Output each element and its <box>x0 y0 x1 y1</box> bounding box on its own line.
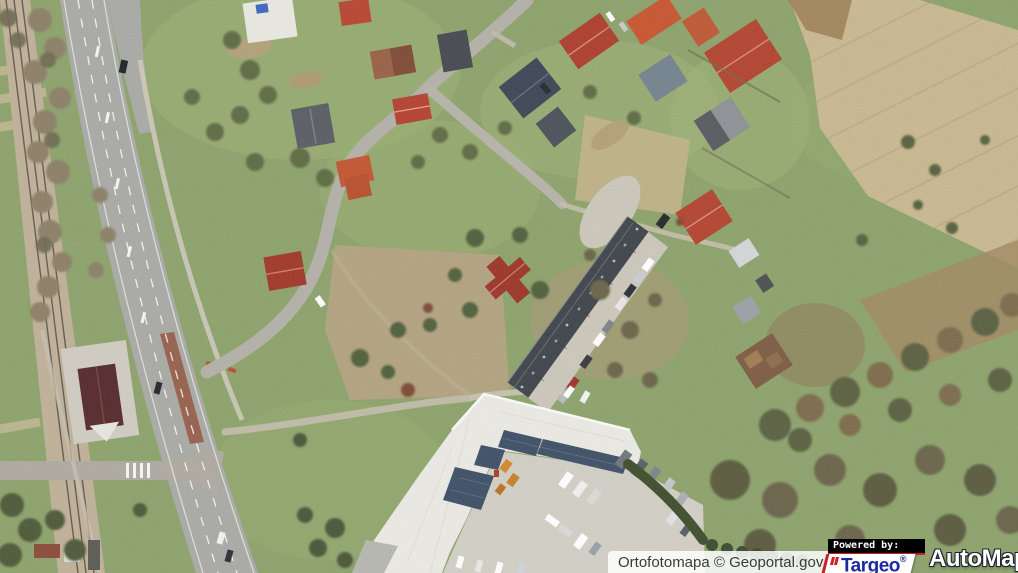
automapa-logo[interactable]: AutoMapa® <box>929 543 1018 571</box>
map-attribution: Ortofotomapa © Geoportal.gov.pl <box>608 551 848 573</box>
targeo-registered-mark: ® <box>900 554 906 564</box>
targeo-logo[interactable]: Targeo® <box>822 554 916 573</box>
photo-grain-overlay <box>0 0 1018 573</box>
targeo-ticks-icon <box>831 550 840 558</box>
automapa-logo-text: AutoMapa <box>929 545 1018 572</box>
satellite-map <box>0 0 1018 573</box>
map-viewport[interactable]: Ortofotomapa © Geoportal.gov.pl Powered … <box>0 0 1018 573</box>
attribution-text: Ortofotomapa © Geoportal.gov.pl <box>618 554 838 571</box>
targeo-logo-text: Targeo <box>841 555 900 573</box>
